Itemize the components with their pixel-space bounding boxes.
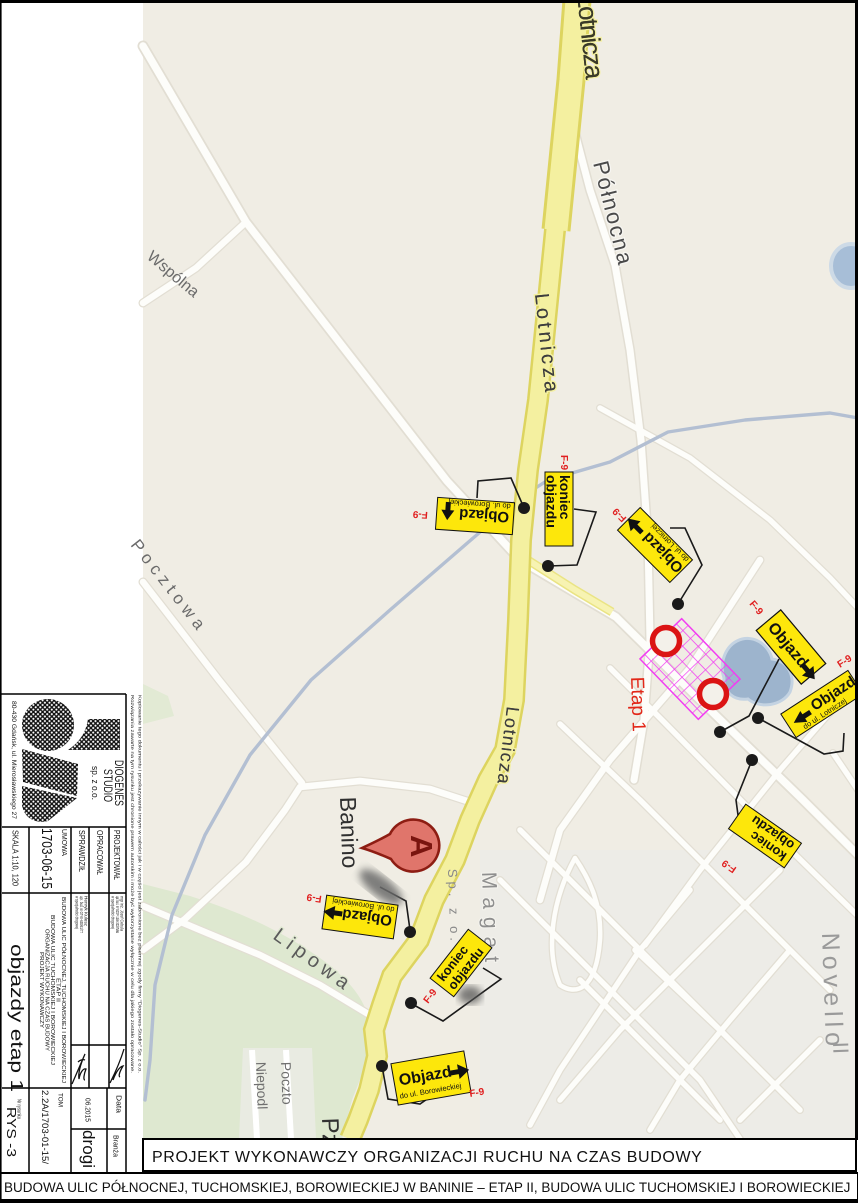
svg-text:SKALA 1:10, 120: SKALA 1:10, 120: [11, 830, 21, 886]
svg-text:Branża: Branża: [112, 1135, 119, 1157]
svg-text:Poczto: Poczto: [278, 1062, 295, 1106]
svg-text:Rozwiązania zawarte na tym rys: Rozwiązania zawarte na tym rysunku jest …: [129, 695, 135, 1073]
svg-text:Banino: Banino: [335, 796, 363, 868]
svg-text:objazdy etap 1: objazdy etap 1: [7, 944, 27, 1092]
svg-text:1703-06-15: 1703-06-15: [38, 828, 55, 889]
svg-text:RYS -3: RYS -3: [4, 1107, 19, 1157]
svg-text:STUDIO: STUDIO: [101, 769, 115, 802]
svg-text:objazdu: objazdu: [544, 475, 560, 528]
svg-text:F-9: F-9: [306, 891, 323, 904]
svg-text:Niepodl: Niepodl: [253, 1062, 271, 1110]
svg-text:06.2015: 06.2015: [84, 1098, 91, 1122]
svg-text:UMOWA: UMOWA: [60, 829, 69, 856]
svg-text:TOM: TOM: [57, 1093, 64, 1107]
svg-text:Sp. z o.: Sp. z o.: [445, 869, 463, 946]
svg-text:drogi: drogi: [79, 1130, 98, 1168]
svg-text:OPRACOWAŁ: OPRACOWAŁ: [95, 830, 105, 875]
svg-text:F-9: F-9: [412, 508, 428, 520]
svg-text:Kopiowanie tego dokumentu i pr: Kopiowanie tego dokumentu i przekazywani…: [137, 695, 143, 1073]
svg-text:BUDOWA ULIC PÓŁNOCNEJ, TUCHOMS: BUDOWA ULIC PÓŁNOCNEJ, TUCHOMSKIEJ, BORO…: [4, 1180, 850, 1195]
svg-text:PROJEKTOWAŁ: PROJEKTOWAŁ: [112, 830, 122, 880]
svg-text:PROJEKT WYKONAWCZY ORGANIZACJI: PROJEKT WYKONAWCZY ORGANIZACJI RUCHU NA …: [152, 1149, 702, 1166]
svg-text:Data: Data: [115, 1095, 122, 1113]
svg-text:PROJEKT WYKONAWCZY: PROJEKT WYKONAWCZY: [38, 952, 44, 1028]
svg-text:SPRAWDZIŁ: SPRAWDZIŁ: [77, 830, 87, 872]
svg-text:F-9: F-9: [558, 455, 569, 470]
svg-text:Etap 1: Etap 1: [626, 676, 649, 732]
svg-text:Novello: Novello: [816, 932, 848, 1051]
svg-text:sp. z o.o.: sp. z o.o.: [90, 766, 100, 800]
svg-text:w specjalności drogowej: w specjalności drogowej: [111, 896, 116, 929]
svg-text:A: A: [404, 835, 439, 857]
svg-text:II: II: [828, 1041, 853, 1054]
svg-text:2.2A/1703-01-15/: 2.2A/1703-01-15/: [39, 1090, 50, 1164]
svg-text:w specjalności drogowej: w specjalności drogowej: [74, 896, 79, 929]
svg-text:80-430 Gdańsk, ul. Mierosławsk: 80-430 Gdańsk, ul. Mierosławskiego 27: [10, 701, 17, 819]
